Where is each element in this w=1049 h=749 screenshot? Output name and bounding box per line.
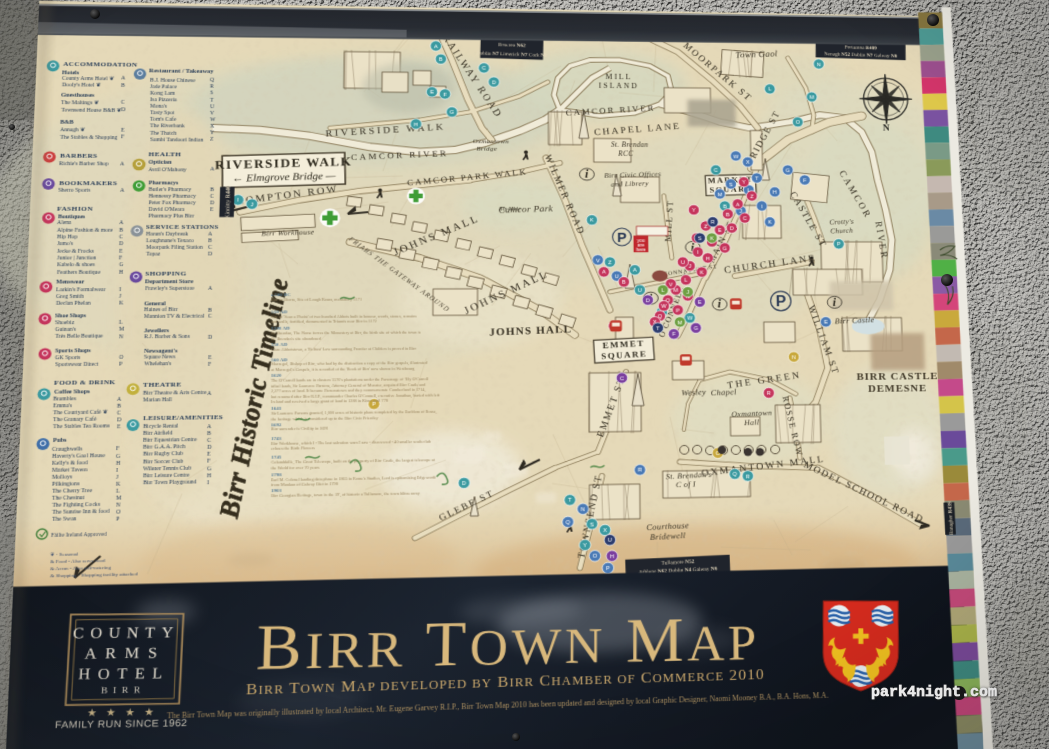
svg-text:Mona's: Mona's xyxy=(150,104,167,110)
svg-text:Pubs: Pubs xyxy=(53,437,68,443)
svg-text:Birr Town Playground: Birr Town Playground xyxy=(143,479,197,486)
svg-text:P: P xyxy=(775,294,786,310)
svg-text:Q: Q xyxy=(733,472,738,478)
svg-text:Menswear: Menswear xyxy=(56,280,85,286)
svg-text:R.J. Barber & Sons: R.J. Barber & Sons xyxy=(144,334,190,340)
svg-text:Haines of Birr: Haines of Birr xyxy=(144,306,178,313)
svg-text:K: K xyxy=(710,236,714,242)
svg-text:Kinnitty R440: Kinnitty R440 xyxy=(225,186,232,219)
svg-text:BOOKMAKERS: BOOKMAKERS xyxy=(59,180,118,187)
svg-text:D: D xyxy=(119,242,123,248)
svg-text:Kabelo & shoes: Kabelo & shoes xyxy=(57,263,95,269)
svg-text:A: A xyxy=(208,286,212,292)
svg-text:S: S xyxy=(590,522,594,528)
svg-text:Bridge: Bridge xyxy=(477,146,498,153)
svg-text:County Arms Hotel ❦: County Arms Hotel ❦ xyxy=(62,75,115,82)
svg-text:Declan Phelan: Declan Phelan xyxy=(56,301,91,307)
svg-text:Topaz: Topaz xyxy=(146,252,161,258)
svg-text:Isa Pizzeria: Isa Pizzeria xyxy=(150,97,178,103)
svg-text:Jade Palace: Jade Palace xyxy=(150,84,178,90)
svg-text:The Thatch: The Thatch xyxy=(150,130,177,136)
svg-text:J: J xyxy=(250,202,253,208)
svg-text:C: C xyxy=(121,100,125,106)
svg-text:SERVICE STATIONS: SERVICE STATIONS xyxy=(146,224,219,231)
svg-text:B: B xyxy=(207,431,211,437)
svg-text:L: L xyxy=(768,87,771,92)
svg-text:E: E xyxy=(430,90,434,96)
svg-text:Birr Equestrian Centre: Birr Equestrian Centre xyxy=(143,437,198,444)
svg-text:Sherro Sports: Sherro Sports xyxy=(58,188,90,194)
svg-text:Sambi Tandoori Indian: Sambi Tandoori Indian xyxy=(150,137,204,143)
svg-text:G: G xyxy=(116,453,121,459)
svg-text:O: O xyxy=(116,509,121,515)
svg-text:Q: Q xyxy=(210,78,214,84)
svg-text:Z: Z xyxy=(704,224,708,230)
svg-text:ISLAND: ISLAND xyxy=(599,81,639,90)
svg-text:C: C xyxy=(743,216,747,222)
svg-text:FAMILY RUN SINCE 1962: FAMILY RUN SINCE 1962 xyxy=(55,718,188,732)
svg-text:C: C xyxy=(208,314,212,320)
svg-text:V: V xyxy=(669,282,673,288)
svg-text:A: A xyxy=(121,76,125,82)
svg-text:Birr surrender is Civility in: Birr surrender is Civility in 1691 xyxy=(271,426,328,432)
svg-text:P: P xyxy=(676,308,680,314)
svg-text:Larkin's Formalwear: Larkin's Formalwear xyxy=(56,287,106,293)
svg-text:Butler's Pharmacy: Butler's Pharmacy xyxy=(148,187,191,193)
svg-text:The Swan: The Swan xyxy=(52,516,77,523)
svg-text:Birr Castle: Birr Castle xyxy=(835,316,875,326)
svg-text:D: D xyxy=(208,335,212,341)
svg-text:J: J xyxy=(688,264,691,270)
svg-text:Pharmacy Plus Birr: Pharmacy Plus Birr xyxy=(148,214,194,220)
svg-text:Tom's Cafe: Tom's Cafe xyxy=(150,116,177,123)
svg-text:X: X xyxy=(210,124,214,130)
svg-text:B: B xyxy=(208,308,212,314)
svg-text:M: M xyxy=(673,288,678,294)
svg-text:Très Belle Boutique: Très Belle Boutique xyxy=(55,334,104,340)
svg-text:A: A xyxy=(119,221,123,227)
svg-text:O: O xyxy=(796,120,801,125)
svg-text:Jecke & Frocks: Jecke & Frocks xyxy=(57,249,94,255)
svg-text:L: L xyxy=(684,278,687,284)
svg-text:MILL: MILL xyxy=(605,72,632,80)
svg-text:A: A xyxy=(207,424,211,430)
svg-text:The Fighting Cocks: The Fighting Cocks xyxy=(52,502,100,509)
svg-text:R: R xyxy=(638,468,642,474)
svg-text:Haverty's Gaol House: Haverty's Gaol House xyxy=(52,453,106,460)
svg-text:R: R xyxy=(711,220,715,226)
svg-text:Shoebiz: Shoebiz xyxy=(55,320,75,326)
svg-text:Jamo's: Jamo's xyxy=(57,242,73,248)
svg-text:H: H xyxy=(119,270,123,276)
svg-text:Shoe Shops: Shoe Shops xyxy=(55,313,87,319)
svg-text:❦ - Seasonal: ❦ - Seasonal xyxy=(50,551,79,558)
svg-text:Birr G.A.A. Pitch: Birr G.A.A. Pitch xyxy=(143,444,186,451)
svg-text:A: A xyxy=(208,232,212,238)
svg-text:THEATRE: THEATRE xyxy=(143,382,182,389)
svg-text:M: M xyxy=(677,320,682,326)
svg-text:D: D xyxy=(117,417,122,423)
svg-text:Y: Y xyxy=(742,180,746,186)
svg-text:Mannion TV & Electrical: Mannion TV & Electrical xyxy=(144,314,205,320)
svg-text:Z: Z xyxy=(608,260,612,266)
svg-text:J: J xyxy=(686,290,689,296)
svg-text:Bir Mlde: Bir Mlde xyxy=(499,207,521,213)
svg-text:N: N xyxy=(581,507,585,513)
svg-text:ARMS: ARMS xyxy=(84,645,166,662)
svg-text:Optician: Optician xyxy=(148,160,172,166)
svg-text:B: B xyxy=(119,228,123,234)
svg-text:X: X xyxy=(603,528,607,534)
svg-text:Whelehan's: Whelehan's xyxy=(144,361,172,367)
svg-text:Townsend House B&B ❦: Townsend House B&B ❦ xyxy=(61,107,122,114)
svg-text:D: D xyxy=(208,252,212,258)
svg-text:S: S xyxy=(698,236,702,242)
svg-text:O: O xyxy=(593,554,598,560)
svg-text:Harun's Daybreak: Harun's Daybreak xyxy=(146,232,189,238)
svg-text:I: I xyxy=(116,467,118,473)
svg-text:K: K xyxy=(768,220,772,226)
svg-text:P: P xyxy=(119,362,123,368)
svg-text:A: A xyxy=(602,270,606,276)
svg-text:U: U xyxy=(681,260,685,266)
svg-text:Hennessy Pharmacy: Hennessy Pharmacy xyxy=(148,194,196,200)
svg-text:and Librery: and Librery xyxy=(611,179,649,188)
svg-text:Bicycle Rental: Bicycle Rental xyxy=(143,424,179,430)
svg-text:R: R xyxy=(746,474,750,480)
svg-text:Guinan's: Guinan's xyxy=(55,327,76,333)
svg-text:G: G xyxy=(119,263,123,269)
svg-text:B: B xyxy=(726,212,730,218)
svg-text:Frawley's Superstore: Frawley's Superstore xyxy=(145,286,195,292)
svg-text:N: N xyxy=(883,124,890,134)
svg-text:Birr Civic Offices: Birr Civic Offices xyxy=(604,170,662,180)
svg-text:U: U xyxy=(638,288,642,294)
svg-text:Chapel: Chapel xyxy=(711,388,738,398)
svg-text:K: K xyxy=(119,301,123,307)
svg-text:B: B xyxy=(622,280,626,286)
svg-text:The Sunrise Inn & food: The Sunrise Inn & food xyxy=(52,507,110,515)
svg-text:Birr Theatre & Arts Centre: Birr Theatre & Arts Centre xyxy=(143,390,207,397)
svg-text:Birr Leisure Centre: Birr Leisure Centre xyxy=(143,472,190,479)
svg-text:Pilkingtons: Pilkingtons xyxy=(52,481,80,488)
svg-text:Portumna R489: Portumna R489 xyxy=(845,45,877,51)
svg-text:Loughnane's Texaco: Loughnane's Texaco xyxy=(146,239,194,245)
svg-text:B&B: B&B xyxy=(60,120,74,126)
svg-text:G: G xyxy=(450,110,455,116)
svg-text:F: F xyxy=(208,362,211,368)
svg-text:H: H xyxy=(610,554,614,560)
svg-text:The Stables & Shopping: The Stables & Shopping xyxy=(60,135,118,141)
svg-text:R: R xyxy=(767,391,771,397)
svg-text:Alena: Alena xyxy=(57,221,72,227)
svg-text:Roscrea N62: Roscrea N62 xyxy=(498,42,526,48)
svg-text:Hall: Hall xyxy=(743,418,760,427)
svg-text:P: P xyxy=(116,516,120,522)
svg-text:FASHION: FASHION xyxy=(57,206,93,213)
svg-text:The Chestnut: The Chestnut xyxy=(52,495,85,502)
svg-text:Kelly's & food: Kelly's & food xyxy=(52,459,88,467)
svg-text:Pharmacys: Pharmacys xyxy=(148,181,179,187)
svg-text:C: C xyxy=(117,410,122,416)
svg-text:K: K xyxy=(116,481,121,487)
svg-text:C: C xyxy=(620,376,624,382)
svg-text:Town Gaol: Town Gaol xyxy=(735,50,778,61)
svg-text:Marian Hall: Marian Hall xyxy=(143,397,173,403)
svg-text:D: D xyxy=(462,481,466,487)
svg-text:C: C xyxy=(208,245,212,251)
svg-text:The Riverbank: The Riverbank xyxy=(150,124,185,130)
svg-text:S: S xyxy=(729,182,733,188)
svg-text:D: D xyxy=(646,298,650,304)
svg-text:the World for over 70 years: the World for over 70 years xyxy=(271,465,320,471)
svg-text:Moorpark Filing Station: Moorpark Filing Station xyxy=(146,245,203,251)
svg-text:SHOPPING: SHOPPING xyxy=(145,271,187,278)
svg-text:The Cherry Tree: The Cherry Tree xyxy=(52,488,93,495)
svg-text:F: F xyxy=(119,256,122,262)
svg-text:Z: Z xyxy=(750,194,754,200)
svg-text:Jewellers: Jewellers xyxy=(144,328,170,334)
svg-text:Oxmantown: Oxmantown xyxy=(473,138,509,145)
svg-text:B: B xyxy=(208,239,212,245)
svg-text:DEMESNE: DEMESNE xyxy=(868,383,927,395)
svg-text:D: D xyxy=(210,200,214,206)
svg-text:E: E xyxy=(718,228,722,234)
svg-text:B: B xyxy=(121,83,125,89)
svg-text:E: E xyxy=(824,320,828,326)
svg-text:The Courtyard Café ❦: The Courtyard Café ❦ xyxy=(53,409,108,417)
svg-text:G: G xyxy=(694,326,699,332)
svg-text:Birr Workhouse: Birr Workhouse xyxy=(261,228,315,238)
svg-text:K: K xyxy=(590,218,594,224)
svg-text:W: W xyxy=(733,154,739,160)
svg-text:F: F xyxy=(672,332,676,338)
svg-text:I: I xyxy=(207,480,209,486)
svg-text:D: D xyxy=(207,445,211,451)
svg-text:L: L xyxy=(661,288,664,294)
svg-text:BIRR: BIRR xyxy=(101,684,146,695)
svg-text:HEALTH: HEALTH xyxy=(148,151,181,158)
svg-text:Church: Church xyxy=(830,226,853,235)
svg-text:A: A xyxy=(207,391,211,397)
svg-text:Brambles: Brambles xyxy=(53,396,76,402)
svg-text:B: B xyxy=(210,187,214,193)
svg-text:Emma's: Emma's xyxy=(53,403,72,409)
svg-text:M: M xyxy=(116,495,122,501)
svg-text:E: E xyxy=(698,300,702,306)
svg-text:B: B xyxy=(117,404,122,410)
svg-text:Hip Hop: Hip Hop xyxy=(57,235,78,241)
svg-text:Avril O'Mahony: Avril O'Mahony xyxy=(148,167,186,173)
svg-text:here: here xyxy=(636,247,646,253)
svg-text:W: W xyxy=(210,117,216,123)
svg-text:BARBERS: BARBERS xyxy=(60,153,98,160)
svg-text:Y: Y xyxy=(210,130,214,136)
svg-text:U: U xyxy=(608,538,612,544)
svg-text:Y: Y xyxy=(583,543,587,549)
svg-text:W: W xyxy=(687,316,693,322)
svg-text:U: U xyxy=(210,104,214,110)
svg-text:Y: Y xyxy=(692,208,696,214)
svg-text:R: R xyxy=(210,84,214,90)
svg-text:D: D xyxy=(730,226,734,232)
svg-text:GK Sports: GK Sports xyxy=(55,355,81,361)
svg-text:C: C xyxy=(207,438,211,444)
svg-text:H: H xyxy=(116,460,121,466)
svg-text:C: C xyxy=(210,194,214,200)
svg-text:Coffee Shops: Coffee Shops xyxy=(54,389,91,395)
svg-text:H: H xyxy=(706,256,710,262)
svg-text:H: H xyxy=(773,190,777,196)
svg-text:Junior | Junction: Junior | Junction xyxy=(57,256,97,262)
svg-text:P: P xyxy=(606,566,610,572)
svg-text:G: G xyxy=(207,466,211,472)
svg-text:Richie's Barber Shop: Richie's Barber Shop xyxy=(59,161,109,167)
svg-text:General: General xyxy=(144,301,166,307)
svg-text:Kong Lam: Kong Lam xyxy=(150,91,176,97)
svg-text:C of I: C of I xyxy=(676,480,696,490)
svg-text:H: H xyxy=(414,122,418,128)
svg-text:F: F xyxy=(803,178,807,184)
svg-text:S: S xyxy=(210,91,213,97)
svg-text:M: M xyxy=(119,327,125,333)
svg-text:V: V xyxy=(210,111,214,117)
svg-text:Crotty's: Crotty's xyxy=(829,217,854,226)
svg-text:Birr Airfield: Birr Airfield xyxy=(143,430,173,437)
svg-text:Craughwells: Craughwells xyxy=(52,446,83,452)
svg-text:Tasty Spot: Tasty Spot xyxy=(150,111,175,117)
svg-text:BIRR CASTLE: BIRR CASTLE xyxy=(857,371,939,383)
svg-text:P: P xyxy=(617,230,627,245)
svg-text:St. Brendan's site abandoned: St. Brendan's site abandoned xyxy=(271,336,322,341)
svg-text:echoes the Birth Flowers: echoes the Birth Flowers xyxy=(271,446,315,452)
svg-text:HOTEL: HOTEL xyxy=(78,666,170,684)
svg-text:Boutiques: Boutiques xyxy=(58,214,86,220)
svg-text:A: A xyxy=(120,161,124,167)
svg-text:F: F xyxy=(121,135,124,141)
svg-text:The Maltings ❦: The Maltings ❦ xyxy=(61,99,99,106)
svg-text:ACCOMMODATION: ACCOMMODATION xyxy=(63,61,138,68)
svg-text:C: C xyxy=(119,235,123,241)
svg-text:St. Brendan: St. Brendan xyxy=(611,140,648,149)
svg-text:B.J. House Chinese: B.J. House Chinese xyxy=(150,78,196,84)
svg-text:A: A xyxy=(117,397,122,403)
svg-text:Annagh ❦: Annagh ❦ xyxy=(60,127,86,134)
svg-text:T: T xyxy=(755,176,759,182)
svg-text:M: M xyxy=(809,95,814,100)
svg-text:A: A xyxy=(434,44,438,50)
svg-text:F: F xyxy=(207,459,210,465)
svg-text:I: I xyxy=(119,287,121,293)
svg-text:COUNTY: COUNTY xyxy=(72,625,180,643)
svg-text:Alpine Fashion & more: Alpine Fashion & more xyxy=(57,228,114,234)
svg-text:LEISURE/AMENITIES: LEISURE/AMENITIES xyxy=(143,415,223,423)
svg-text:O: O xyxy=(119,355,124,361)
svg-text:Square News: Square News xyxy=(144,355,176,361)
svg-text:V: V xyxy=(596,258,600,264)
svg-text:Birr Rugby Club: Birr Rugby Club xyxy=(143,451,183,458)
svg-text:Guesthouses: Guesthouses xyxy=(61,93,95,99)
svg-text:Restaurant / Takeaway: Restaurant / Takeaway xyxy=(149,68,215,75)
svg-text:Fáilte Ireland Approved: Fáilte Ireland Approved xyxy=(51,532,107,539)
svg-text:N: N xyxy=(116,502,121,508)
svg-text:David O'Meara: David O'Meara xyxy=(148,207,185,213)
svg-text:A: A xyxy=(120,188,124,194)
svg-text:D: D xyxy=(492,80,496,86)
svg-text:N: N xyxy=(792,355,796,361)
svg-text:Greg Smith: Greg Smith xyxy=(56,294,84,300)
svg-text:N: N xyxy=(817,62,821,67)
svg-text:Market Tavern: Market Tavern xyxy=(52,467,88,474)
svg-text:U: U xyxy=(615,274,619,280)
svg-text:N: N xyxy=(119,334,124,340)
svg-text:D: D xyxy=(121,108,125,114)
svg-text:Department Store: Department Store xyxy=(145,279,194,285)
svg-text:Birr Soccer Club: Birr Soccer Club xyxy=(143,458,184,465)
svg-text:F: F xyxy=(443,92,447,98)
svg-text:Feathers Boutique: Feathers Boutique xyxy=(57,269,101,275)
svg-text:G: G xyxy=(723,246,728,252)
svg-text:FOOD & DRINK: FOOD & DRINK xyxy=(54,379,116,387)
svg-text:RCC: RCC xyxy=(617,149,633,157)
svg-text:Sports Shops: Sports Shops xyxy=(55,348,92,354)
svg-text:Dooly's Hotel ❦: Dooly's Hotel ❦ xyxy=(62,82,101,89)
svg-text:A: A xyxy=(633,268,637,274)
svg-text:Molloys: Molloys xyxy=(52,474,72,480)
svg-text:T: T xyxy=(568,498,572,504)
svg-text:H: H xyxy=(207,473,211,479)
svg-text:A: A xyxy=(210,167,214,173)
svg-text:Wilmer Tennis Club: Wilmer Tennis Club xyxy=(143,465,192,472)
svg-text:T: T xyxy=(656,326,660,332)
svg-text:G: G xyxy=(786,168,791,174)
svg-text:Peter Fox Pharmacy: Peter Fox Pharmacy xyxy=(148,200,196,206)
svg-text:F: F xyxy=(116,446,120,452)
svg-text:The Stables Tea Rooms: The Stables Tea Rooms xyxy=(53,424,110,431)
svg-text:Wesley: Wesley xyxy=(681,388,706,398)
svg-text:X: X xyxy=(746,160,750,166)
svg-text:The Granary Café: The Granary Café xyxy=(53,416,97,424)
svg-text:B: B xyxy=(439,57,443,63)
svg-text:Sportswear Direct: Sportswear Direct xyxy=(55,362,99,368)
svg-text:M: M xyxy=(717,192,722,198)
svg-text:W: W xyxy=(661,304,667,310)
svg-text:C: C xyxy=(714,168,718,174)
svg-text:Q: Q xyxy=(566,520,571,526)
svg-text:P: P xyxy=(837,242,841,248)
svg-text:C: C xyxy=(482,66,486,72)
svg-text:K: K xyxy=(700,270,704,276)
svg-text:A: A xyxy=(736,202,740,208)
svg-text:Newsagent's: Newsagent's xyxy=(144,348,178,354)
